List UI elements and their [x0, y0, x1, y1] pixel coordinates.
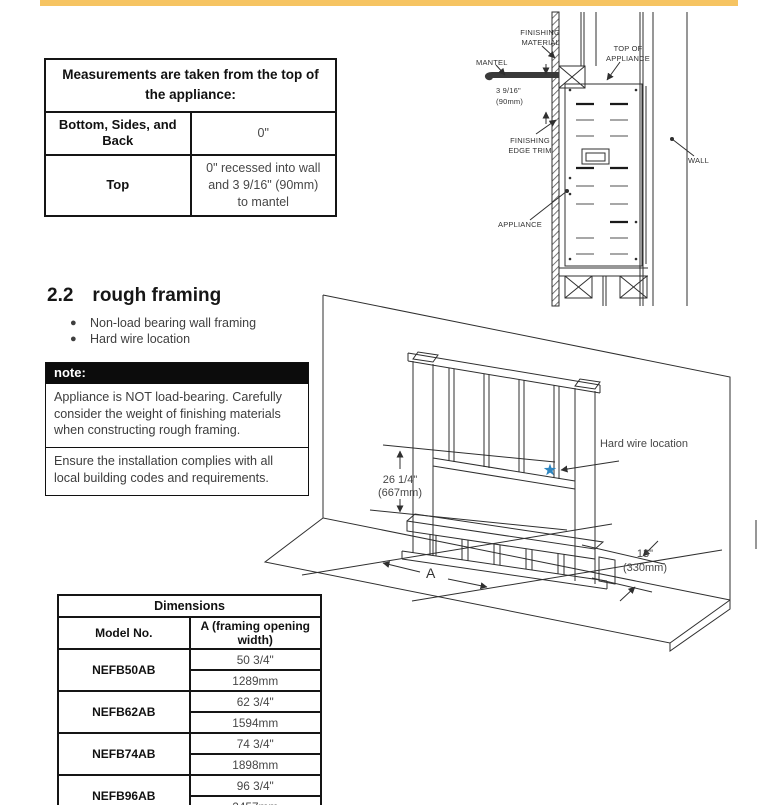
dimensions-table: Dimensions Model No. A (framing opening …: [57, 594, 322, 805]
value-cell: 50 3/4": [190, 649, 322, 670]
value-cell: 96 3/4": [190, 775, 322, 796]
value-cell: 1898mm: [190, 754, 322, 775]
framing-width-letter: A: [426, 565, 448, 583]
table-row: Bottom, Sides, and Back 0": [45, 112, 336, 156]
mantel-label: MANTEL: [476, 58, 518, 68]
measurement-label: Top: [45, 155, 191, 216]
model-cell: NEFB50AB: [58, 649, 190, 691]
framing-drawing: [262, 283, 782, 673]
value-cell: 2457mm: [190, 796, 322, 805]
opening-height-mm: (667mm): [362, 487, 438, 501]
model-cell: NEFB74AB: [58, 733, 190, 775]
bullet-icon: ●: [70, 332, 90, 348]
bullet-list: ● Non-load bearing wall framing ● Hard w…: [70, 316, 256, 347]
bullet-text: Non-load bearing wall framing: [90, 316, 256, 332]
section-heading: 2.2rough framing: [47, 285, 221, 307]
table-row: Dimensions: [58, 595, 321, 617]
hard-wire-location-label: Hard wire location: [598, 438, 690, 452]
bullet-text: Hard wire location: [90, 332, 190, 348]
appliance-label: APPLIANCE: [498, 220, 558, 230]
dimensions-table-title: Dimensions: [58, 595, 321, 617]
depth-mm: (330mm): [614, 562, 676, 576]
table-row: NEFB62AB 62 3/4": [58, 691, 321, 712]
value-cell: 1594mm: [190, 712, 322, 733]
wall-label: WALL: [688, 156, 724, 166]
value-cell: 62 3/4": [190, 691, 322, 712]
measurement-value: 0": [191, 112, 337, 156]
table-row: NEFB74AB 74 3/4": [58, 733, 321, 754]
mantel-offset-mm: (90mm): [496, 97, 540, 107]
finishing-edge-trim-label: FINISHING EDGE TRIM: [498, 136, 562, 156]
model-cell: NEFB62AB: [58, 691, 190, 733]
column-header-width: A (framing opening width): [190, 617, 322, 649]
measurements-table: Measurements are taken from the top of t…: [44, 58, 337, 217]
rough-framing-diagram: 26 1/4" (667mm) Hard wire location 13" (…: [262, 283, 782, 673]
mantel-offset-inches: 3 9/16": [496, 86, 540, 96]
wall-cross-section-diagram: FINISHING MATERIAL MANTEL 3 9/16" (90mm)…: [470, 8, 782, 308]
manual-page: Measurements are taken from the top of t…: [0, 0, 782, 805]
table-row: NEFB50AB 50 3/4": [58, 649, 321, 670]
value-cell: 74 3/4": [190, 733, 322, 754]
bullet-icon: ●: [70, 316, 90, 332]
measurement-value: 0" recessed into wall and 3 9/16" (90mm)…: [191, 155, 337, 216]
table-row: NEFB96AB 96 3/4": [58, 775, 321, 796]
measurements-table-title: Measurements are taken from the top of t…: [45, 59, 336, 112]
column-header-model: Model No.: [58, 617, 190, 649]
table-row: Top 0" recessed into wall and 3 9/16" (9…: [45, 155, 336, 216]
section-title: rough framing: [92, 285, 221, 306]
top-of-appliance-label: TOP OF APPLIANCE: [598, 44, 658, 64]
opening-height-inches: 26 1/4": [362, 474, 438, 488]
value-cell: 1289mm: [190, 670, 322, 691]
measurement-label: Bottom, Sides, and Back: [45, 112, 191, 156]
table-row: Measurements are taken from the top of t…: [45, 59, 336, 112]
finishing-material-label: FINISHING MATERIAL: [500, 28, 560, 48]
page-accent-bar: [40, 0, 738, 6]
list-item: ● Non-load bearing wall framing: [70, 316, 256, 332]
model-cell: NEFB96AB: [58, 775, 190, 805]
depth-inches: 13": [614, 548, 676, 562]
section-number: 2.2: [47, 285, 73, 306]
table-row: Model No. A (framing opening width): [58, 617, 321, 649]
list-item: ● Hard wire location: [70, 332, 256, 348]
